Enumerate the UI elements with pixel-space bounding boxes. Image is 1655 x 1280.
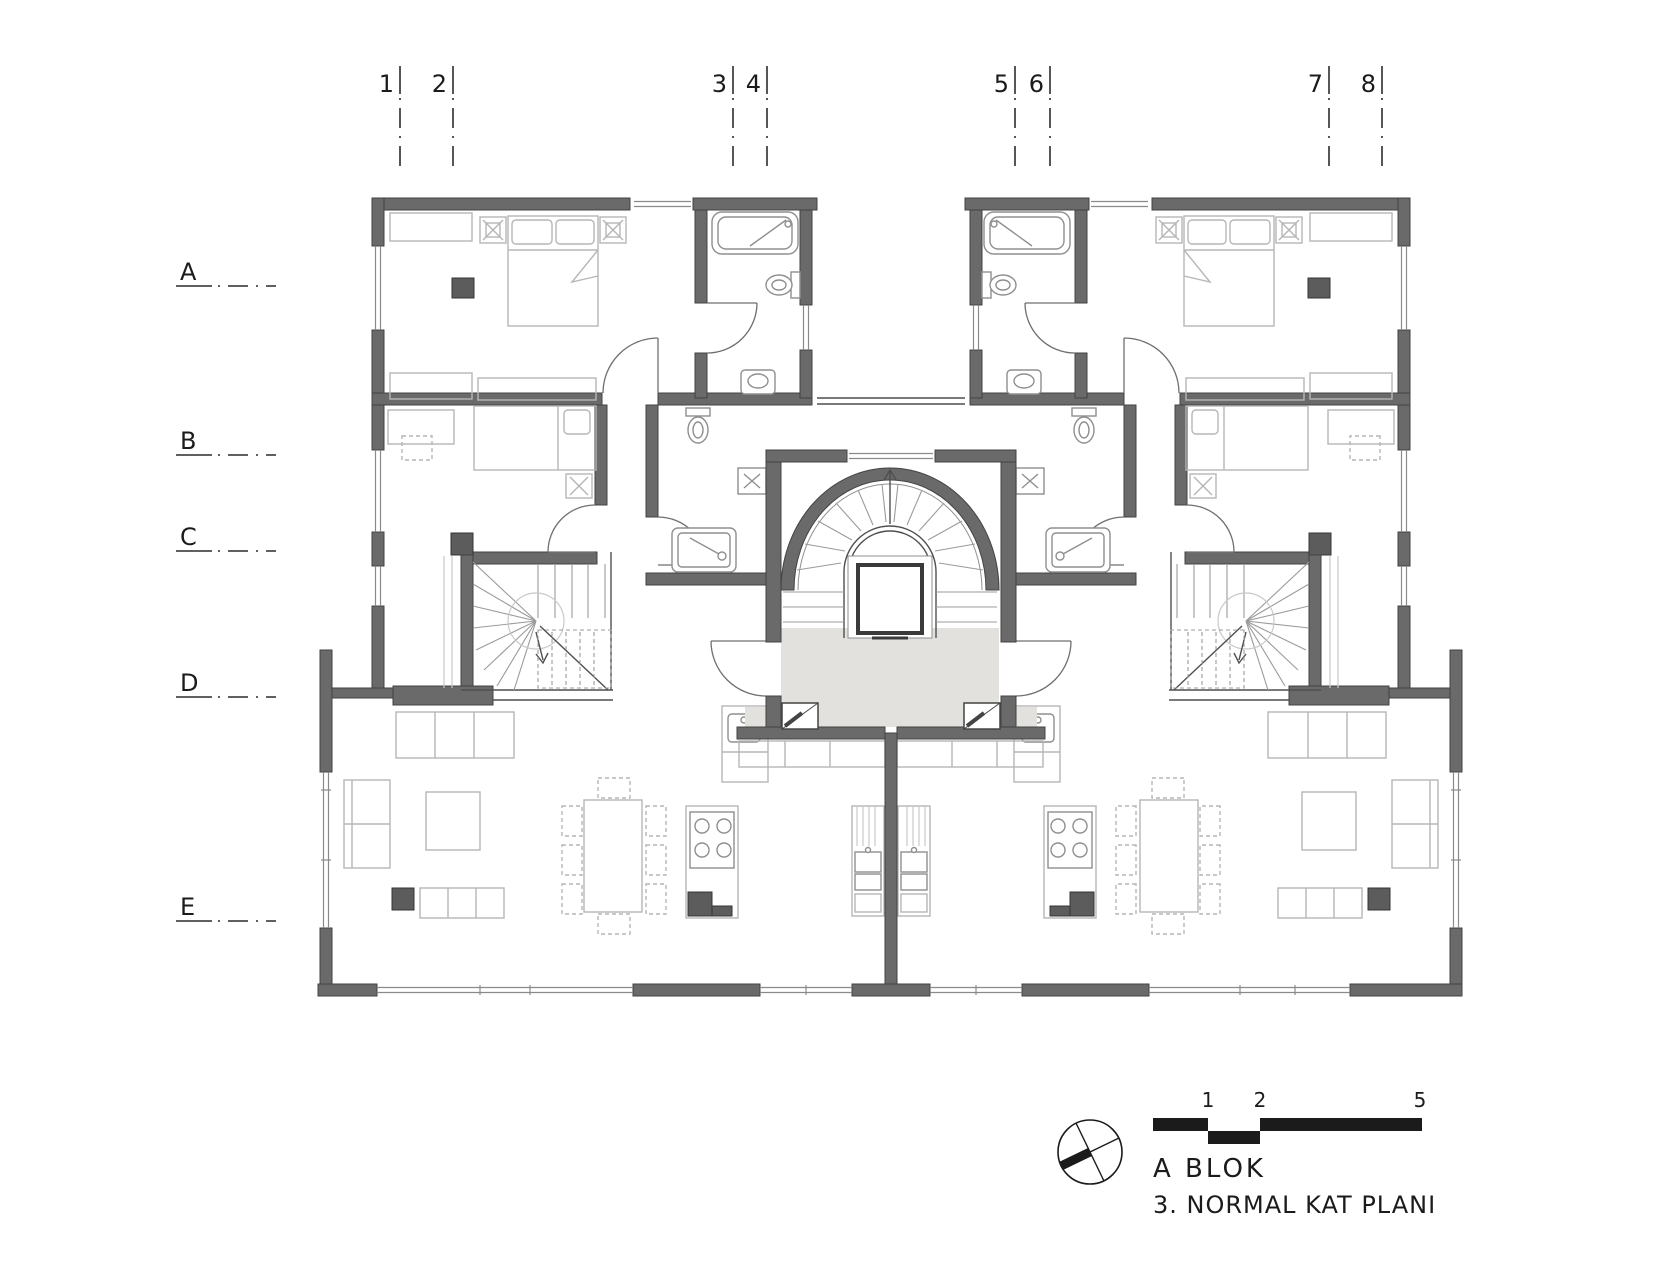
- nightstand-plant: [480, 217, 506, 243]
- grid-column-5: 5: [994, 66, 1015, 168]
- apartment-unit-right: [897, 198, 1462, 996]
- grid-column-label: 5: [994, 70, 1009, 98]
- title-block: 1 2 5 A BLOK 3. NORMAL KAT PLANI: [1058, 1088, 1436, 1219]
- armchair-sectional: [344, 780, 390, 868]
- grid-column-7: 7: [1308, 66, 1329, 168]
- structural-column: [392, 888, 414, 910]
- grid-row-C: C: [176, 523, 276, 551]
- structural-column: [452, 278, 474, 298]
- grid-row-label: E: [180, 893, 195, 921]
- grid-column-3: 3: [712, 66, 733, 168]
- grid-column-8: 8: [1361, 66, 1382, 168]
- grid-column-6: 6: [1029, 66, 1050, 168]
- door-bedroom-1: [603, 338, 658, 393]
- floor-plan-sheet: 1 2 3 4 5 6 7: [0, 0, 1655, 1280]
- nightstand-plant: [600, 217, 626, 243]
- grid-column-2: 2: [432, 66, 453, 168]
- desk-chair: [402, 436, 432, 460]
- kitchen-sink-counter: [852, 806, 884, 916]
- kitchen-island-stove: [686, 806, 738, 918]
- toilet: [686, 408, 710, 443]
- floor-plan-canvas: 1 2 3 4 5 6 7: [0, 0, 1655, 1280]
- washbasin: [741, 370, 775, 394]
- grid-row-label: C: [180, 523, 197, 551]
- bedroom-2-furniture: [388, 406, 596, 498]
- vent-shaft-right: [964, 703, 1000, 729]
- door-apartment-entry: [711, 641, 766, 696]
- scale-tick-label: 5: [1414, 1088, 1427, 1112]
- grid-row-B: B: [176, 427, 276, 455]
- wc-fixtures: [672, 408, 766, 572]
- dining-table-chairs: [562, 778, 666, 934]
- lightwell-railing: [817, 398, 965, 404]
- north-arrow-icon: [1058, 1120, 1122, 1184]
- drawing-title-block-name: A BLOK: [1153, 1154, 1266, 1184]
- desk: [388, 410, 454, 444]
- walls: [320, 198, 817, 996]
- door-bathroom: [707, 303, 757, 353]
- grid-column-label: 3: [712, 70, 727, 98]
- grid-row-A: A: [176, 258, 276, 286]
- grid-column-label: 8: [1361, 70, 1376, 98]
- double-bed: [508, 216, 598, 326]
- grid-column-label: 4: [746, 70, 761, 98]
- elevator: [848, 556, 932, 638]
- grid-column-label: 7: [1308, 70, 1323, 98]
- grid-column-1: 1: [379, 66, 400, 168]
- drawing-title-floor-name: 3. NORMAL KAT PLANI: [1153, 1191, 1436, 1219]
- counter-at-landing-wall: [739, 741, 885, 767]
- bathtub: [712, 212, 798, 254]
- toilet: [766, 272, 800, 298]
- grid-row-label: D: [180, 669, 198, 697]
- grid-row-E: E: [176, 893, 276, 921]
- grid-row-label: A: [180, 258, 197, 286]
- scale-tick-label: 2: [1254, 1088, 1267, 1112]
- stair-core: [737, 398, 1045, 996]
- door-bedroom-2: [548, 505, 595, 552]
- vent-shaft-left: [782, 703, 818, 729]
- living-room-furniture: [344, 712, 666, 934]
- grid-column-4: 4: [746, 66, 767, 168]
- bedroom-1-furniture: [390, 213, 626, 400]
- single-bed: [474, 406, 596, 470]
- party-wall: [885, 733, 897, 984]
- sofa-bench: [420, 888, 504, 918]
- grid-row-label: B: [180, 427, 196, 455]
- scale-bar: 1 2 5: [1153, 1088, 1426, 1144]
- washbasin: [738, 468, 766, 494]
- wardrobe: [390, 213, 472, 241]
- sofa-three-seat: [396, 712, 514, 758]
- shower-tray: [672, 528, 736, 572]
- scale-tick-label: 1: [1202, 1088, 1215, 1112]
- apartment-unit-left: [320, 198, 885, 996]
- grid-column-label: 2: [432, 70, 447, 98]
- grid-column-label: 6: [1029, 70, 1044, 98]
- grid-column-label: 1: [379, 70, 394, 98]
- nightstand-plant: [566, 474, 592, 498]
- grid-row-D: D: [176, 669, 276, 697]
- coffee-table: [426, 792, 480, 850]
